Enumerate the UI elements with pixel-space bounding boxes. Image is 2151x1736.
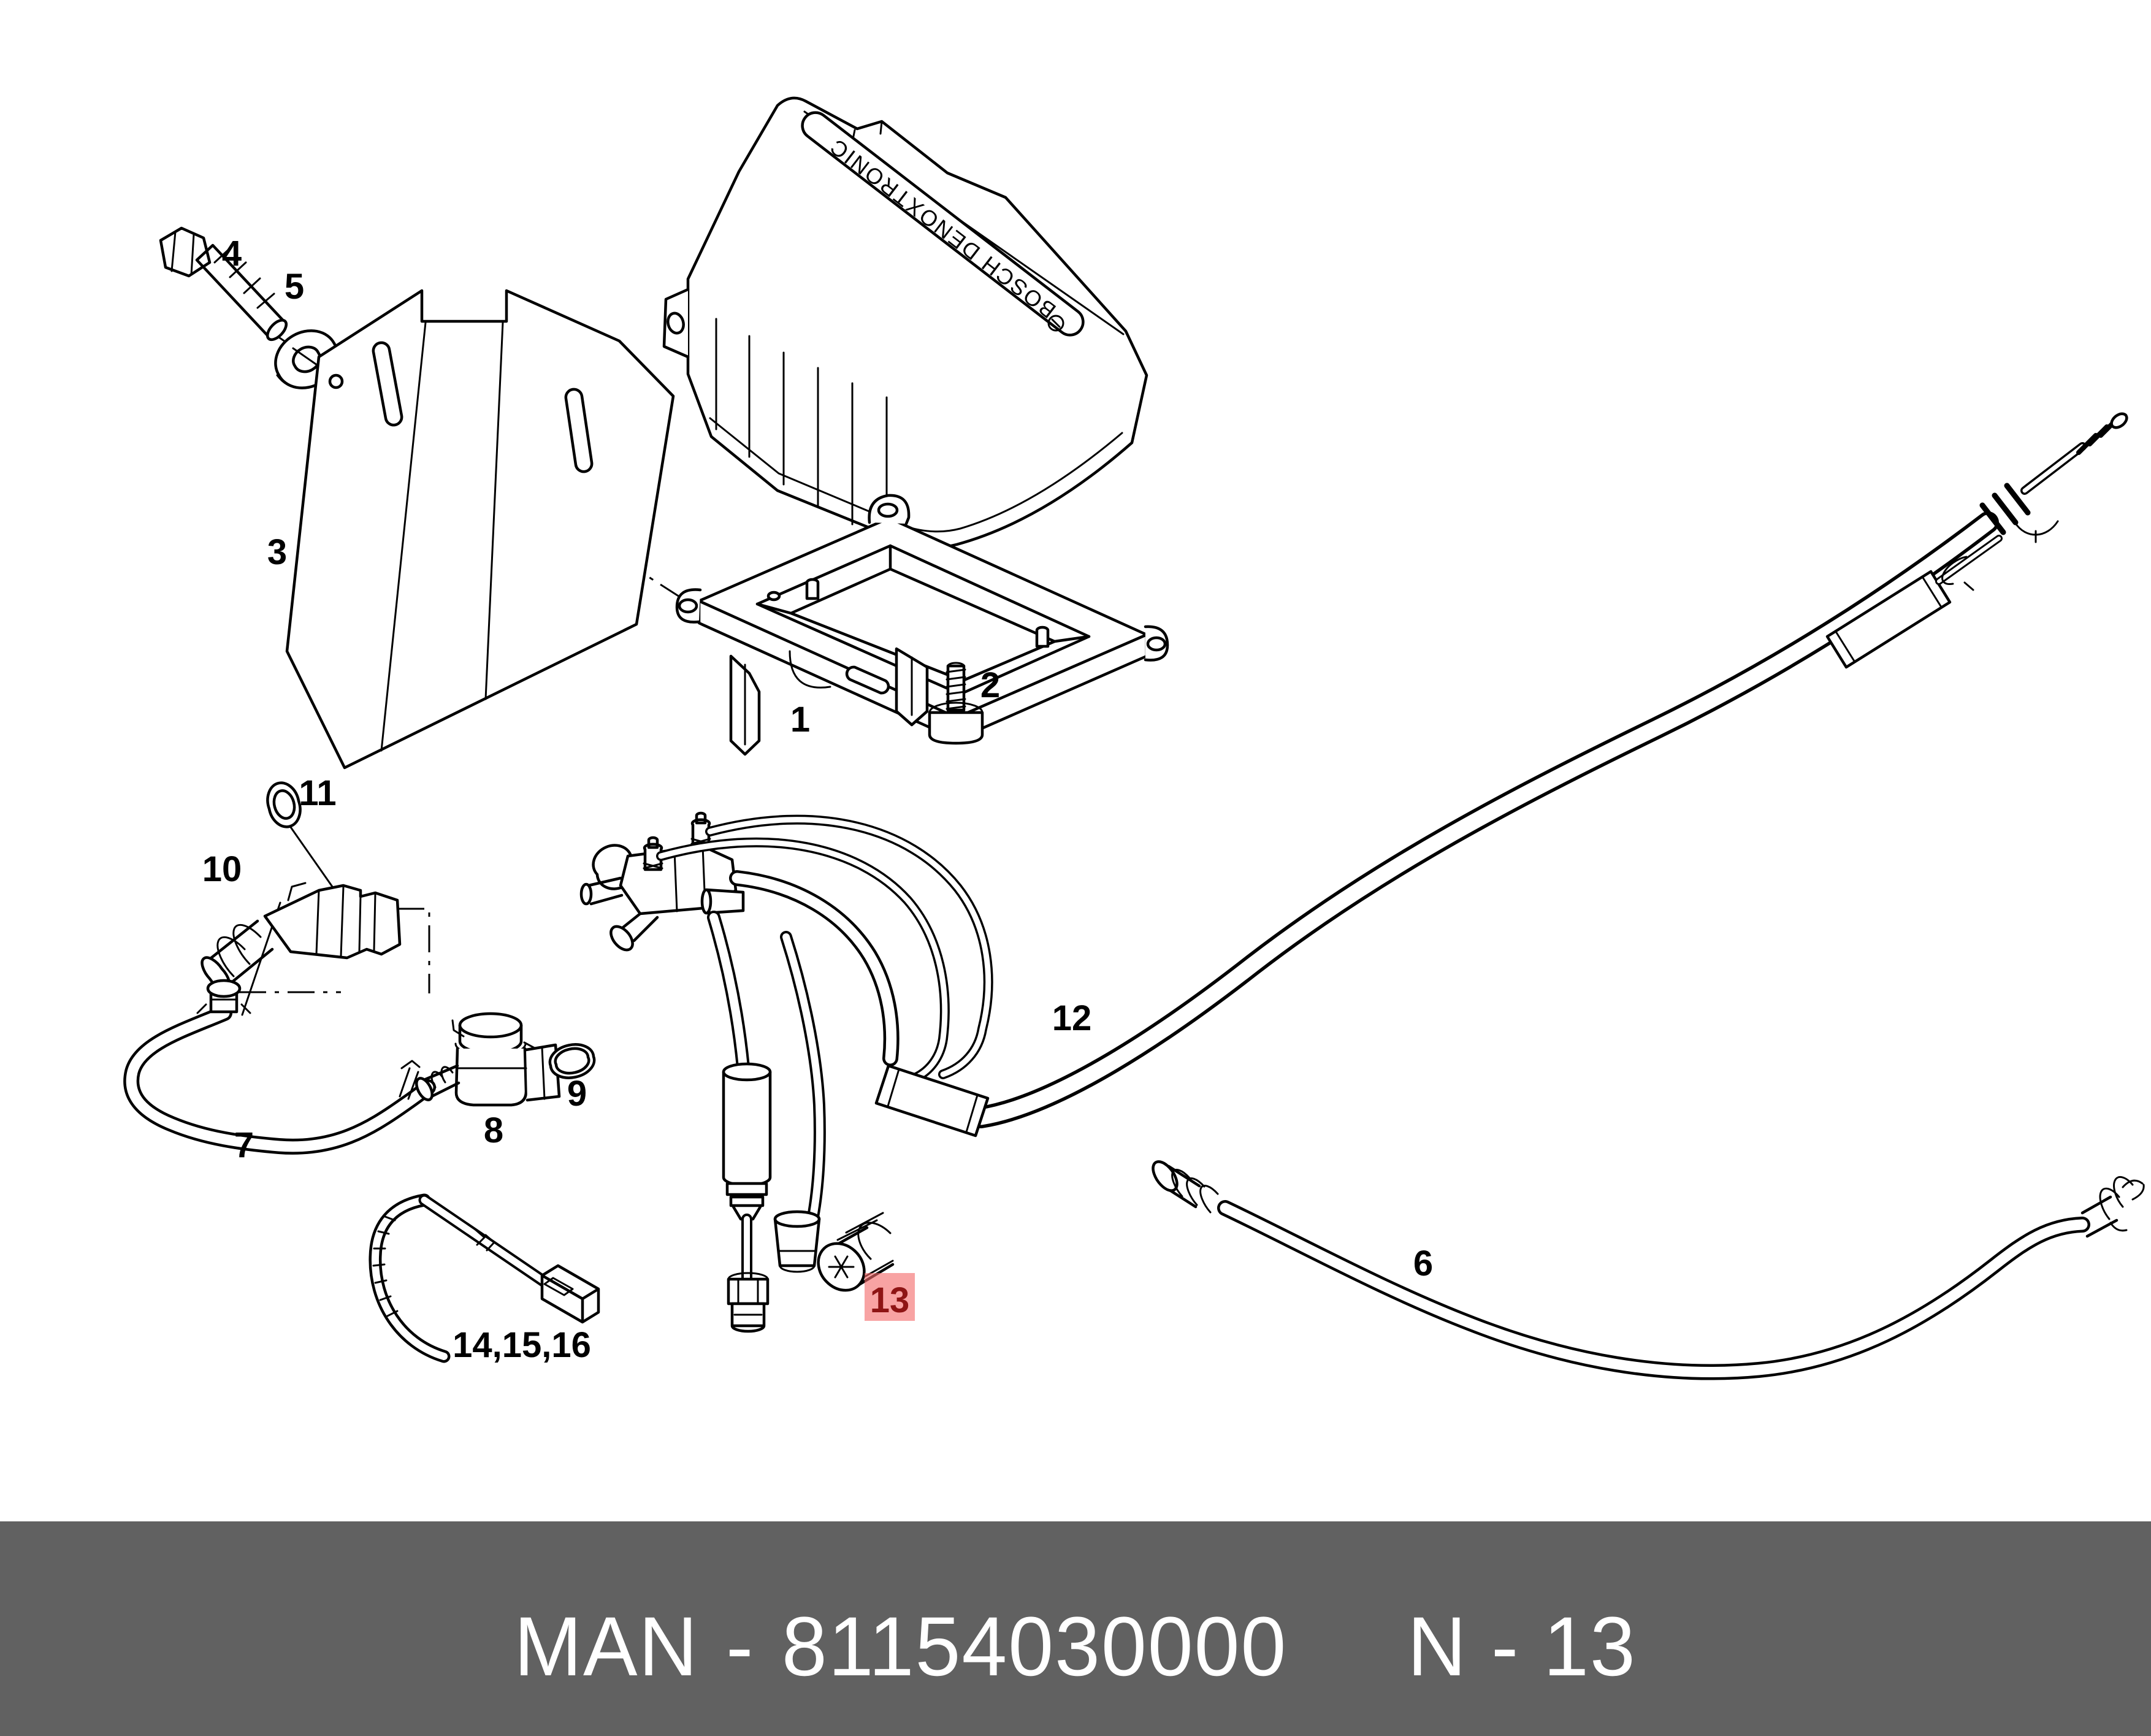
part-label-11: 11: [299, 773, 336, 813]
part-label-8: 8: [484, 1111, 503, 1150]
tie-head: [542, 1266, 598, 1322]
axis-connector-route: [397, 909, 429, 993]
valve-cap: [460, 1014, 521, 1037]
filter-cap: [732, 1304, 764, 1331]
cover-tab-hole: [668, 313, 683, 334]
part-label-7: 7: [234, 1125, 254, 1165]
hose12-end-cap: [2112, 414, 2127, 427]
plate-outline: [287, 291, 673, 768]
o-ring: [550, 1044, 594, 1077]
filter-top: [724, 1064, 770, 1080]
highlighted-part-13[interactable]: 13: [865, 1273, 915, 1321]
hose6-elbow-details: [2100, 1177, 2144, 1230]
connector-barbs: [218, 925, 261, 976]
plate-hole: [330, 375, 342, 388]
return-hose: [1153, 1161, 2144, 1372]
part-label-5: 5: [285, 267, 304, 307]
part-label-3: 3: [267, 532, 287, 572]
denoxtronic-cover: BOSCH DENOXTRONIC: [664, 98, 1147, 548]
part-label-4: 4: [222, 234, 242, 273]
pump-left-tip: [581, 884, 591, 904]
hose7-fitting-top: [208, 981, 240, 996]
hose12-sleeve: [876, 1066, 988, 1136]
valve-body: [456, 1049, 526, 1105]
filter-coupler: [728, 1279, 768, 1304]
hose12-main-fill: [981, 522, 1988, 1117]
pump-lower-tip: [611, 927, 632, 950]
heat-shield-plate: [287, 291, 673, 768]
branch-cup-top: [775, 1212, 819, 1226]
oring9-inner: [556, 1049, 589, 1073]
footer-bar: MAN - 81154030000 N - 13: [0, 1521, 2151, 1736]
o-ring-small: [267, 783, 300, 827]
part-label-10: 10: [202, 849, 242, 889]
parts-catalog-page: BOSCH DENOXTRONIC: [0, 0, 2151, 1736]
hose12-clip: [2015, 521, 2058, 542]
tie-tail-fill: [375, 1200, 444, 1356]
valve-connector: [416, 1014, 559, 1105]
pump-plug: [702, 890, 743, 913]
hose12-end-tube-fill: [2025, 446, 2082, 491]
tie-strap-fill: [424, 1200, 543, 1281]
supply-hose: [131, 981, 428, 1147]
mounting-bracket: [677, 495, 1167, 754]
part-label-9: 9: [567, 1074, 587, 1114]
part-label-14-15-16: 14,15,16: [453, 1325, 591, 1365]
part-label-6: 6: [1413, 1244, 1433, 1283]
page-code-text: N - 13: [1408, 1599, 1637, 1695]
part-label-1: 1: [790, 700, 810, 740]
parts-diagram: BOSCH DENOXTRONIC: [0, 0, 2151, 1521]
hose-connector: [202, 883, 400, 990]
part-number-text: 81154030000: [782, 1599, 1287, 1695]
footer-text: MAN - 81154030000 N - 13: [514, 1599, 1637, 1695]
brand-text: MAN: [514, 1599, 699, 1695]
part-label-2: 2: [980, 665, 1000, 705]
oring11-inner: [274, 790, 294, 818]
inline-filter: [714, 917, 820, 1331]
connector-body: [265, 885, 400, 958]
part-label-12: 12: [1052, 998, 1092, 1038]
filter-cylinder: [724, 1072, 770, 1185]
part-label-13[interactable]: 13: [870, 1280, 910, 1320]
footer-divider: -: [726, 1599, 754, 1695]
hose6-barb-tip: [1153, 1161, 1177, 1190]
hose6-fill: [1225, 1208, 2082, 1372]
